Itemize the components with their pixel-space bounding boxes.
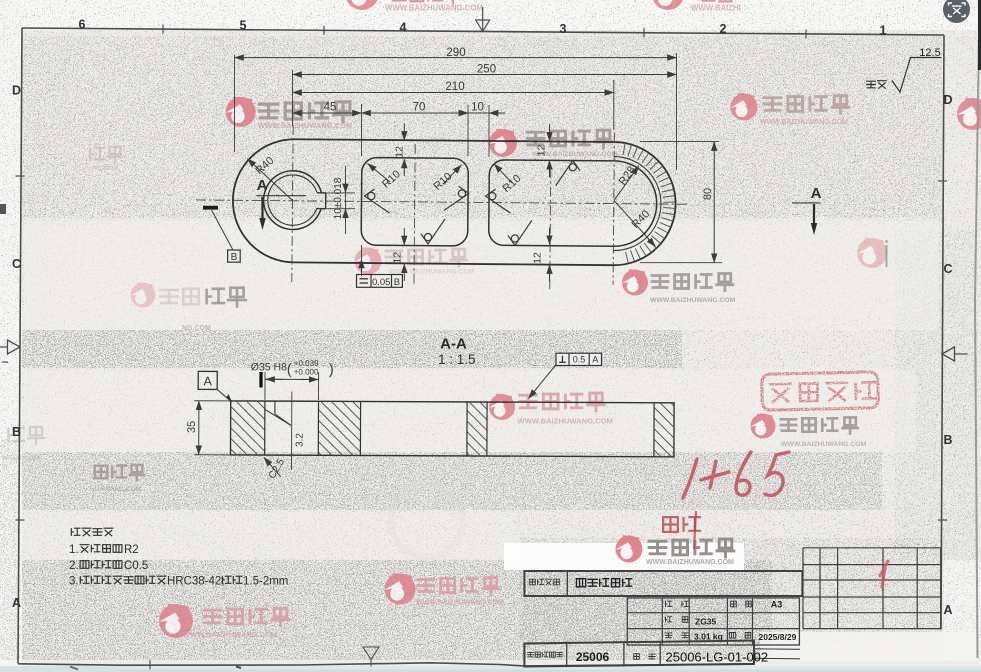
svg-text:A: A (592, 355, 598, 365)
svg-text:80: 80 (702, 188, 714, 200)
svg-text:12: 12 (391, 252, 403, 264)
svg-text:WWW.BAIZHUWANG.COM: WWW.BAIZHUWANG.COM (760, 119, 848, 126)
svg-text:WWW.BAIZHUWANG.COM: WWW.BAIZHUWANG.COM (518, 417, 613, 426)
svg-text:35: 35 (186, 421, 198, 433)
svg-text:B: B (12, 425, 21, 439)
svg-text:45: 45 (324, 102, 337, 114)
svg-text:0.05: 0.05 (372, 277, 391, 288)
svg-text:HRC38-42;: HRC38-42; (167, 576, 225, 588)
svg-text:+0.000: +0.000 (294, 367, 319, 376)
svg-text:WWW.BAIZHUWANG.COM: WWW.BAIZHUWANG.COM (650, 297, 736, 304)
svg-text:A: A (204, 374, 213, 388)
svg-text:2: 2 (720, 22, 727, 36)
svg-text:Ø35 H8: Ø35 H8 (251, 361, 287, 373)
svg-text:WWW.BAIZHUWANG.COM: WWW.BAIZHUWANG.COM (183, 630, 277, 639)
svg-text:10±0.018: 10±0.018 (333, 177, 344, 219)
svg-text:A: A (257, 177, 268, 194)
svg-text:210: 210 (445, 81, 464, 93)
svg-text:3: 3 (560, 22, 567, 36)
svg-text:WWW.BAIZHUWANG.COM: WWW.BAIZHUWANG.COM (781, 441, 867, 448)
svg-text:25006: 25006 (576, 650, 610, 664)
svg-text:C0.5: C0.5 (124, 560, 148, 572)
svg-text:A: A (12, 596, 21, 610)
svg-text:5: 5 (240, 19, 247, 33)
svg-text:C: C (12, 257, 21, 271)
svg-text:WWW.BAIZHI: WWW.BAIZHI (691, 4, 741, 13)
svg-text:250: 250 (477, 64, 496, 76)
svg-text:290: 290 (446, 47, 465, 59)
svg-text:4: 4 (400, 21, 407, 35)
svg-text:12: 12 (393, 146, 405, 158)
svg-text:1.: 1. (69, 544, 79, 556)
svg-text:6: 6 (79, 18, 86, 32)
svg-text:WANG.COM: WANG.COM (2, 455, 39, 462)
svg-text:C: C (943, 262, 952, 276)
svg-text:A: A (943, 603, 952, 617)
svg-text:12: 12 (531, 252, 543, 264)
svg-text:ZG35: ZG35 (695, 617, 717, 627)
svg-text:HUAWANG.COM: HUAWANG.COM (90, 486, 141, 493)
svg-text:D: D (12, 84, 21, 98)
svg-text:3.: 3. (69, 576, 79, 588)
svg-text:B: B (231, 252, 238, 263)
svg-text:12: 12 (535, 145, 547, 157)
svg-text:2.: 2. (69, 560, 79, 572)
svg-text:A3: A3 (771, 600, 783, 610)
svg-text:12.5: 12.5 (919, 47, 940, 59)
svg-text:R2: R2 (124, 544, 139, 556)
svg-text:WWW.BAIZHUWANG.COM: WWW.BAIZHUWANG.COM (646, 559, 734, 566)
svg-text:B: B (943, 433, 952, 447)
svg-text:WWW.BAIZHUWANG.COM: WWW.BAIZHUWANG.COM (416, 600, 504, 607)
svg-text:25006-LG-01-002: 25006-LG-01-002 (666, 650, 769, 665)
svg-text:1 : 1.5: 1 : 1.5 (438, 352, 476, 367)
svg-text:0.5: 0.5 (573, 355, 586, 365)
svg-text:1.5-2mm: 1.5-2mm (243, 576, 288, 588)
svg-text:B: B (394, 277, 400, 288)
svg-text:): ) (329, 361, 334, 378)
svg-text:10: 10 (471, 102, 484, 114)
svg-text:2025/8/29: 2025/8/29 (759, 632, 797, 642)
svg-text:(: ( (287, 361, 292, 378)
svg-text:D: D (943, 93, 952, 107)
svg-text:70: 70 (413, 102, 426, 114)
svg-text:NG.COM: NG.COM (92, 165, 119, 172)
svg-text:1: 1 (880, 24, 887, 38)
svg-text:A: A (811, 185, 822, 202)
svg-text:WWW.BAIZHUWANG.COM: WWW.BAIZHUWANG.COM (385, 4, 483, 13)
svg-text:A-A: A-A (440, 336, 467, 353)
svg-text:NG.COM: NG.COM (182, 325, 211, 332)
svg-text:WWW.BAIZHUWANG.COM: WWW.BAIZHUWANG.COM (258, 121, 352, 130)
svg-text:3.2: 3.2 (295, 433, 306, 447)
